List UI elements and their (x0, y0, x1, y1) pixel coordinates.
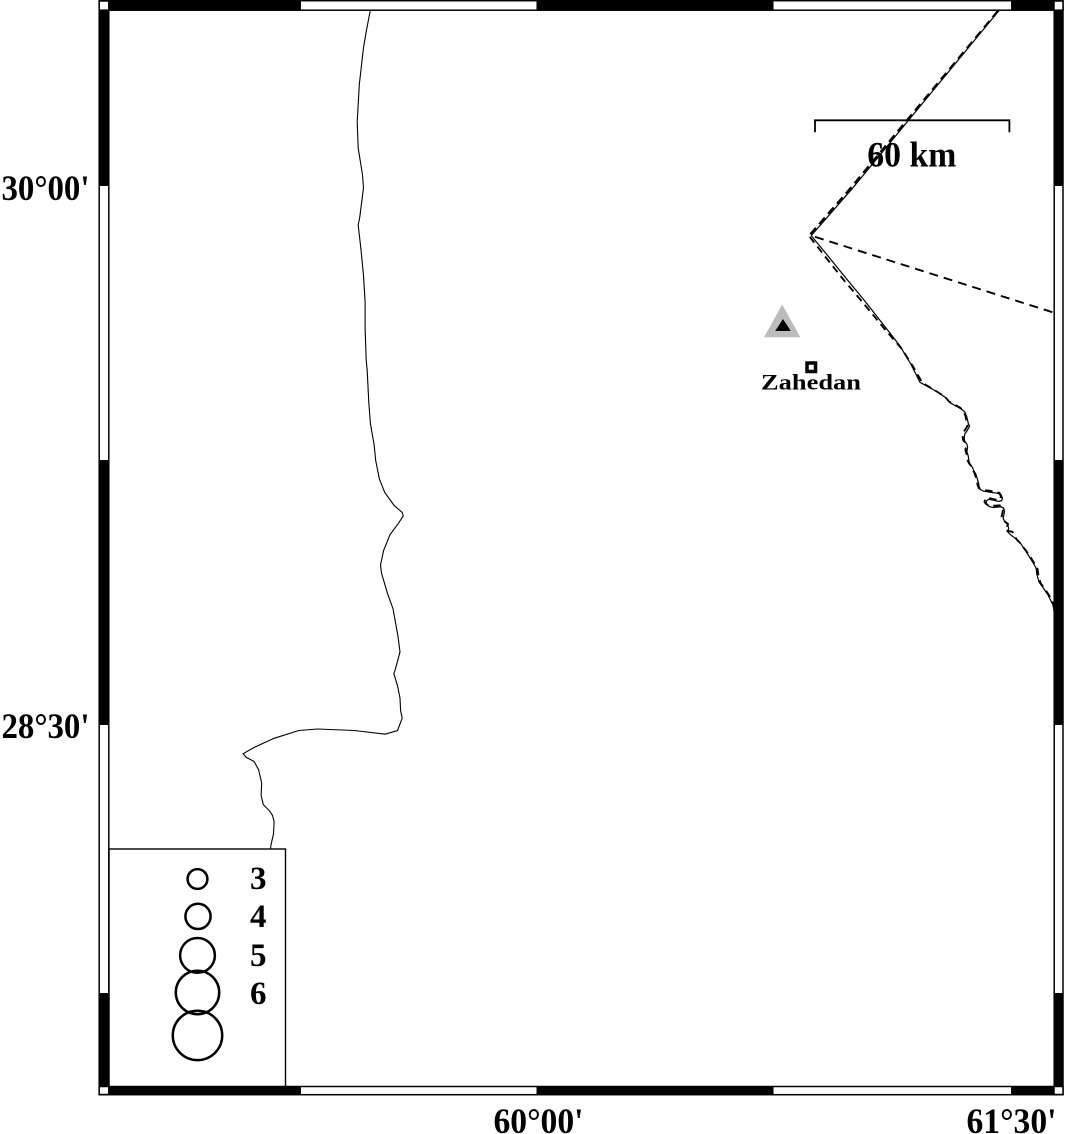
svg-text:60 km: 60 km (867, 135, 956, 175)
svg-text:60°00': 60°00' (494, 1101, 584, 1134)
svg-text:30°00': 30°00' (2, 168, 90, 208)
svg-text:5: 5 (250, 938, 267, 974)
svg-text:Zahedan: Zahedan (761, 370, 861, 395)
svg-text:4: 4 (250, 899, 267, 935)
svg-text:28°30': 28°30' (2, 706, 90, 746)
svg-text:61°30': 61°30' (967, 1101, 1057, 1134)
svg-text:3: 3 (250, 861, 267, 897)
svg-text:6: 6 (250, 976, 267, 1012)
